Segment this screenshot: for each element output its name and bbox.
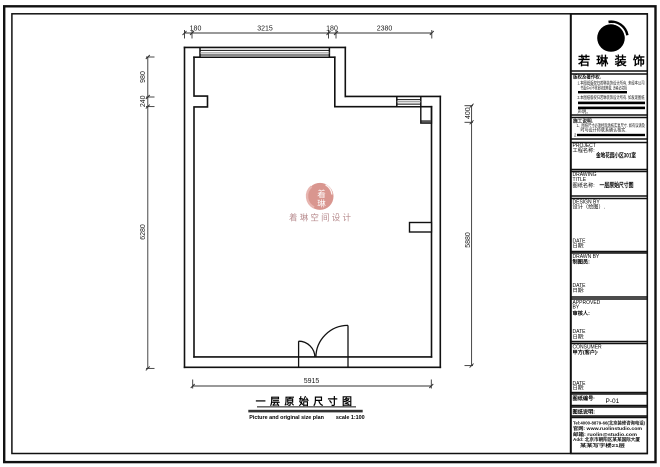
svg-text:着琳空间设计: 着琳空间设计 [289,213,353,223]
svg-text:240: 240 [140,95,147,107]
svg-text:Picture and original size plan: Picture and original size plan scale 1:1… [249,415,364,421]
svg-text:图纸编号·: 图纸编号· [573,394,596,402]
svg-text:若琳装饰: 若琳装饰 [577,53,651,68]
svg-text:180: 180 [190,26,202,33]
svg-text:着: 着 [317,189,326,199]
svg-text:书面许可不得复制或转载. 违者必究相: 书面许可不得复制或转载. 违者必究相 [581,84,628,91]
svg-text:时与设计师联系确认核实.: 时与设计师联系确认核实. [581,127,627,134]
svg-text:设计（绘图）.: 设计（绘图）. [573,203,606,211]
svg-text:980: 980 [140,71,147,83]
svg-text:图纸说明:: 图纸说明: [573,408,596,416]
svg-text:BY: BY [573,305,580,311]
svg-text:一层原始尺寸图: 一层原始尺寸图 [600,180,634,189]
svg-text:工程名称:: 工程名称: [573,146,595,154]
svg-text:6280: 6280 [140,224,147,240]
svg-text:2.本图纸版权归若琳装饰设计所有. 如发现图纸: 2.本图纸版权归若琳装饰设计所有. 如发现图纸 [578,94,645,101]
svg-text:日期:: 日期: [573,385,585,392]
svg-text:日期:: 日期: [573,334,585,341]
svg-text:制图员:: 制图员: [573,258,591,266]
svg-text:图纸名称:: 图纸名称: [573,181,595,189]
svg-text:3215: 3215 [257,26,273,33]
svg-text:某某写字楼21层: 某某写字楼21层 [579,442,626,449]
svg-text:2380: 2380 [377,26,393,33]
svg-text:日期:: 日期: [573,243,585,250]
svg-text:审核人:: 审核人: [573,309,591,317]
svg-text:400: 400 [465,107,472,119]
svg-text:日期:: 日期: [573,287,585,294]
svg-text:P-01: P-01 [606,398,620,405]
svg-text:Add: 北京市朝阳区某某国际大厦: Add: 北京市朝阳区某某国际大厦 [573,436,640,443]
svg-text:金地花园小区301室: 金地花园小区301室 [595,152,636,160]
svg-text:声明。: 声明。 [578,108,591,115]
svg-text:180: 180 [326,26,338,33]
svg-text:琳: 琳 [317,199,326,209]
svg-text:5880: 5880 [465,232,472,248]
svg-text:5915: 5915 [304,378,320,385]
svg-text:甲方(客户)·: 甲方(客户)· [573,348,599,356]
svg-text:一层原始尺寸图: 一层原始尺寸图 [256,395,357,408]
